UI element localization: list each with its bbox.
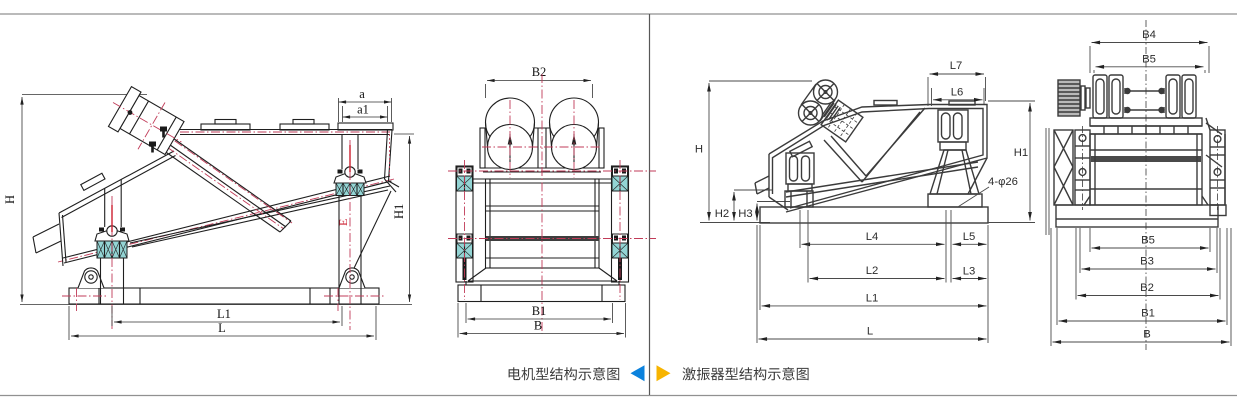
svg-text:4-φ26: 4-φ26 [988,176,1018,188]
svg-text:B4: B4 [1142,29,1156,41]
svg-text:a: a [359,87,365,101]
svg-text:H: H [3,195,17,204]
svg-text:a1: a1 [357,103,369,117]
svg-text:L4: L4 [866,231,879,243]
svg-text:L2: L2 [866,265,879,277]
svg-text:H1: H1 [392,204,406,219]
svg-text:B1: B1 [1141,308,1155,320]
svg-text:H3: H3 [738,208,752,220]
svg-text:B5: B5 [1141,235,1155,247]
svg-text:L6: L6 [951,87,964,99]
svg-text:B5: B5 [1142,54,1156,66]
svg-text:L5: L5 [963,231,976,243]
svg-text:B3: B3 [1140,256,1154,268]
svg-text:L1: L1 [866,293,879,305]
svg-text:H2: H2 [715,208,729,220]
svg-text:E: E [336,219,350,226]
svg-text:L: L [218,321,226,335]
svg-text:L3: L3 [963,266,976,278]
svg-text:B: B [1143,329,1151,341]
svg-text:L7: L7 [950,60,963,72]
svg-text:B: B [534,319,542,333]
svg-text:L1: L1 [217,307,231,321]
svg-text:B2: B2 [1140,282,1154,294]
svg-text:B1: B1 [532,304,547,318]
svg-text:B2: B2 [532,65,547,79]
svg-text:H: H [695,144,703,156]
svg-text:H1: H1 [1014,147,1028,159]
svg-text:L: L [867,326,873,338]
